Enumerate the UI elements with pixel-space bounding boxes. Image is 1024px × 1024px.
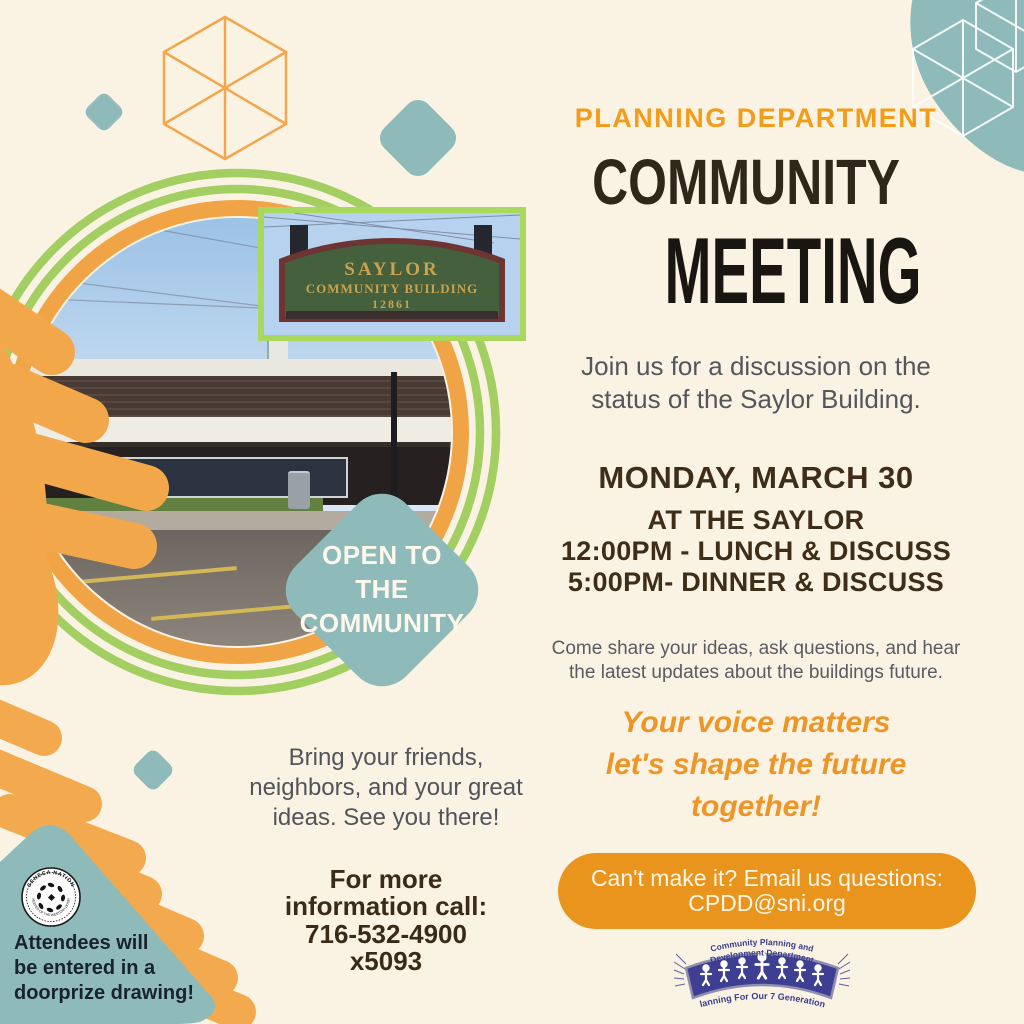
share-ideas-text: Come share your ideas, ask questions, an… — [500, 637, 1012, 685]
diamond-shape — [374, 94, 462, 182]
parking-line — [57, 567, 236, 587]
email-cta-pill: Can't make it? Email us questions: CPDD@… — [558, 853, 976, 929]
building-brick-wall — [23, 376, 451, 417]
bring-friends-text: Bring your friends, neighbors, and your … — [236, 743, 536, 833]
doorprize-text: Attendees will be entered in a doorprize… — [14, 931, 224, 1006]
building-window — [109, 457, 348, 498]
diamond-shape — [83, 91, 125, 133]
intro-line: Join us for a discussion on the — [500, 350, 1012, 383]
contact-info-text: For more information call: 716-532-4900 … — [236, 866, 536, 975]
share-line: the latest updates about the buildings f… — [500, 661, 1012, 685]
bring-line: ideas. See you there! — [236, 803, 536, 833]
open-badge-line: THE — [355, 573, 409, 607]
sign-subtitle: COMMUNITY BUILDING — [306, 281, 478, 296]
open-to-community-badge: OPEN TO THE COMMUNITY — [272, 480, 493, 701]
building-parapet — [23, 359, 451, 376]
doorprize-line: be entered in a — [14, 956, 224, 981]
sign-title: SAYLOR — [344, 259, 439, 280]
corner-blob — [910, 0, 1024, 173]
doorprize-line: doorprize drawing! — [14, 981, 224, 1006]
hexagon-outline-icon — [164, 17, 286, 159]
intro-text: Join us for a discussion on the status o… — [500, 350, 1012, 415]
phone-extension: x5093 — [236, 948, 536, 975]
event-venue: AT THE SAYLOR — [500, 505, 1012, 536]
voice-line: Your voice matters — [500, 702, 1012, 744]
open-badge-line: OPEN TO — [322, 539, 442, 573]
bring-line: Bring your friends, — [236, 743, 536, 773]
voice-line: let's shape the future — [500, 744, 1012, 786]
sign-number: 12861 — [372, 297, 412, 311]
building-pier — [23, 447, 38, 505]
flyer: SAYLOR COMMUNITY BUILDING 12861 OPEN TO … — [0, 0, 1024, 1024]
email-cta-text: Can't make it? Email us questions: — [591, 866, 943, 891]
info-line: information call: — [236, 893, 536, 920]
bring-line: neighbors, and your great — [236, 773, 536, 803]
event-schedule: AT THE SAYLOR 12:00PM - LUNCH & DISCUSS … — [500, 505, 1012, 598]
event-date: MONDAY, MARCH 30 — [500, 460, 1012, 496]
open-badge-line: COMMUNITY — [300, 607, 465, 641]
share-line: Come share your ideas, ask questions, an… — [500, 637, 1012, 661]
lamp-post — [391, 372, 397, 513]
page-title-community: COMMUNITY — [546, 150, 945, 214]
sign-photo: SAYLOR COMMUNITY BUILDING 12861 — [258, 207, 526, 341]
seneca-nation-seal: SENECA NATION KEEPER OF THE WESTERN DOOR — [20, 866, 82, 928]
page-title-meeting: MEETING — [639, 224, 946, 318]
voice-line: together! — [500, 786, 1012, 828]
trash-can — [288, 471, 309, 509]
building-fascia — [23, 417, 451, 447]
email-address[interactable]: CPDD@sni.org — [688, 891, 846, 916]
info-line: For more — [236, 866, 536, 893]
phone-number: 716-532-4900 — [236, 921, 536, 948]
intro-line: status of the Saylor Building. — [500, 383, 1012, 416]
department-logo: Community Planning and Development Depar… — [672, 924, 852, 1018]
eyebrow-planning-department: PLANNING DEPARTMENT — [500, 103, 1012, 134]
doorprize-line: Attendees will — [14, 931, 224, 956]
voice-matters-text: Your voice matters let's shape the futur… — [500, 702, 1012, 828]
event-time-dinner: 5:00PM- DINNER & DISCUSS — [500, 567, 1012, 598]
event-time-lunch: 12:00PM - LUNCH & DISCUSS — [500, 536, 1012, 567]
diamond-shape — [130, 747, 175, 792]
